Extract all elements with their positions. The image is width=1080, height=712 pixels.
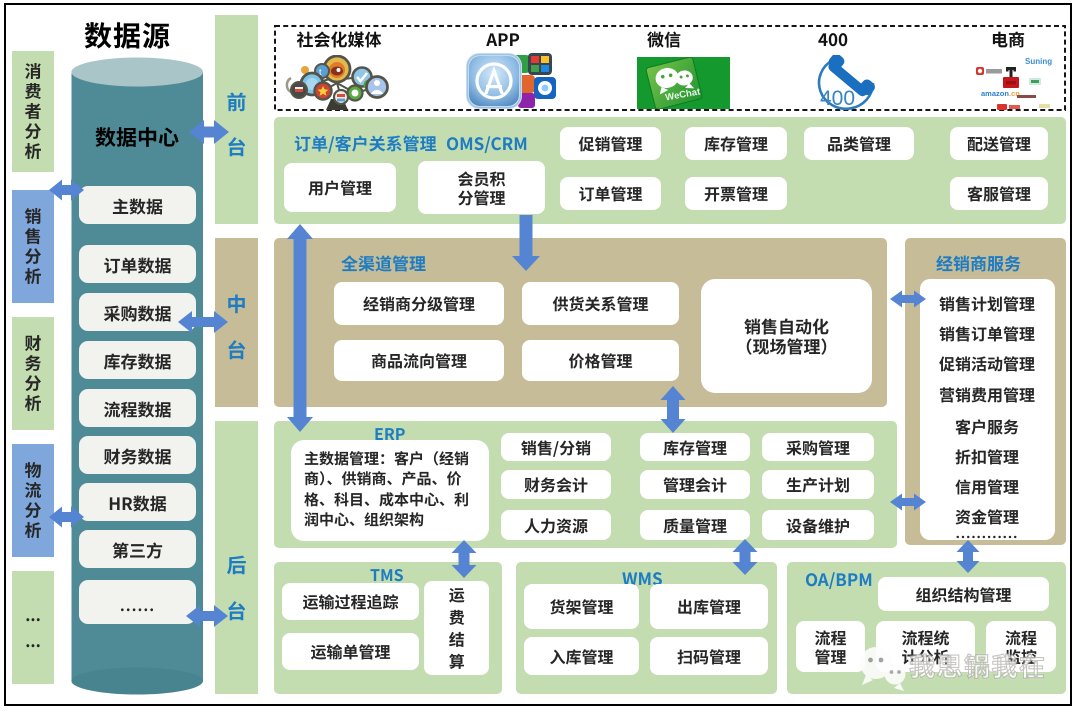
svg-text:Suning.com: Suning.com [1025,57,1052,66]
svg-text:400: 400 [820,87,855,110]
svg-text:amazon.cn: amazon.cn [981,89,1020,98]
